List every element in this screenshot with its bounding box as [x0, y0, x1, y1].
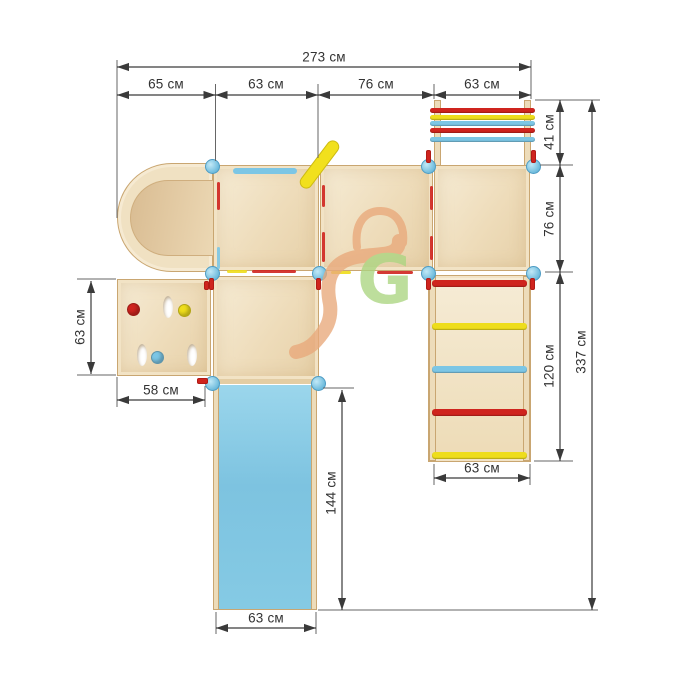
- yellow-rung: [432, 452, 527, 459]
- red-rung: [430, 128, 535, 133]
- dim-ladder-right-length: 120 см: [542, 344, 557, 388]
- red-joint-mark: [322, 232, 325, 262]
- red-joint-mark: [430, 236, 433, 260]
- red-peg: [316, 278, 321, 290]
- yellow-climbing-hold: [178, 304, 191, 317]
- dim-total-width: 273 см: [302, 50, 346, 65]
- blue-rung: [430, 121, 535, 126]
- red-climbing-hold: [127, 303, 140, 316]
- dim-ladder-top-width: 63 см: [464, 77, 500, 92]
- dim-wall-width: 58 см: [143, 383, 179, 398]
- yellow-rung: [430, 115, 535, 120]
- red-rung: [432, 280, 527, 287]
- blue-climbing-hold: [151, 351, 164, 364]
- dim-platform-depth: 76 см: [542, 201, 557, 237]
- dim-tunnel-width: 65 см: [148, 77, 184, 92]
- dim-ladder-top-depth: 41 см: [542, 114, 557, 150]
- dimension-annotations: [0, 0, 700, 700]
- red-joint-mark: [217, 182, 220, 210]
- red-peg: [204, 281, 209, 290]
- red-peg: [530, 278, 535, 290]
- dim-platform1-width: 63 см: [248, 77, 284, 92]
- slide-rail: [311, 385, 317, 610]
- blue-rung: [432, 366, 527, 373]
- yellow-joint-mark: [227, 270, 247, 273]
- connector-joint: [311, 376, 326, 391]
- right-ladder-rungs: [432, 275, 527, 462]
- platform-2: [320, 165, 433, 271]
- red-peg: [531, 150, 536, 163]
- wall-hand-hole: [187, 344, 197, 366]
- red-joint-mark: [252, 270, 296, 273]
- dim-total-height: 337 см: [574, 330, 589, 374]
- dim-slide-width: 63 см: [248, 611, 284, 626]
- yellow-joint-mark: [331, 271, 351, 274]
- red-peg: [209, 278, 214, 290]
- platform-edge-accent: [233, 168, 297, 174]
- connector-joint: [205, 159, 220, 174]
- wall-hand-hole: [163, 296, 173, 318]
- yellow-rung: [432, 323, 527, 330]
- crawl-tunnel-cavity: [130, 180, 213, 256]
- dim-ladder-right-width: 63 см: [464, 461, 500, 476]
- red-peg: [426, 278, 431, 290]
- red-rung: [430, 108, 535, 113]
- dim-slide-length: 144 см: [324, 471, 339, 515]
- red-joint-mark: [430, 186, 433, 210]
- red-joint-mark: [377, 271, 413, 274]
- wall-hand-hole: [137, 344, 147, 366]
- dim-wall-height: 63 см: [73, 309, 88, 345]
- blue-joint-mark: [217, 247, 220, 269]
- watermark-logo: G: [0, 0, 700, 700]
- blue-rung: [430, 137, 535, 142]
- red-joint-mark: [322, 185, 325, 207]
- red-peg: [426, 150, 431, 163]
- playground-top-view-diagram: G: [0, 0, 700, 700]
- red-rung: [432, 409, 527, 416]
- dim-platform2-width: 76 см: [358, 77, 394, 92]
- platform-3: [434, 165, 530, 271]
- platform-slide-top: [213, 276, 319, 384]
- climbing-wall: [117, 279, 211, 376]
- top-ladder: [430, 100, 535, 166]
- slide-surface: [219, 385, 311, 610]
- red-peg: [197, 378, 208, 384]
